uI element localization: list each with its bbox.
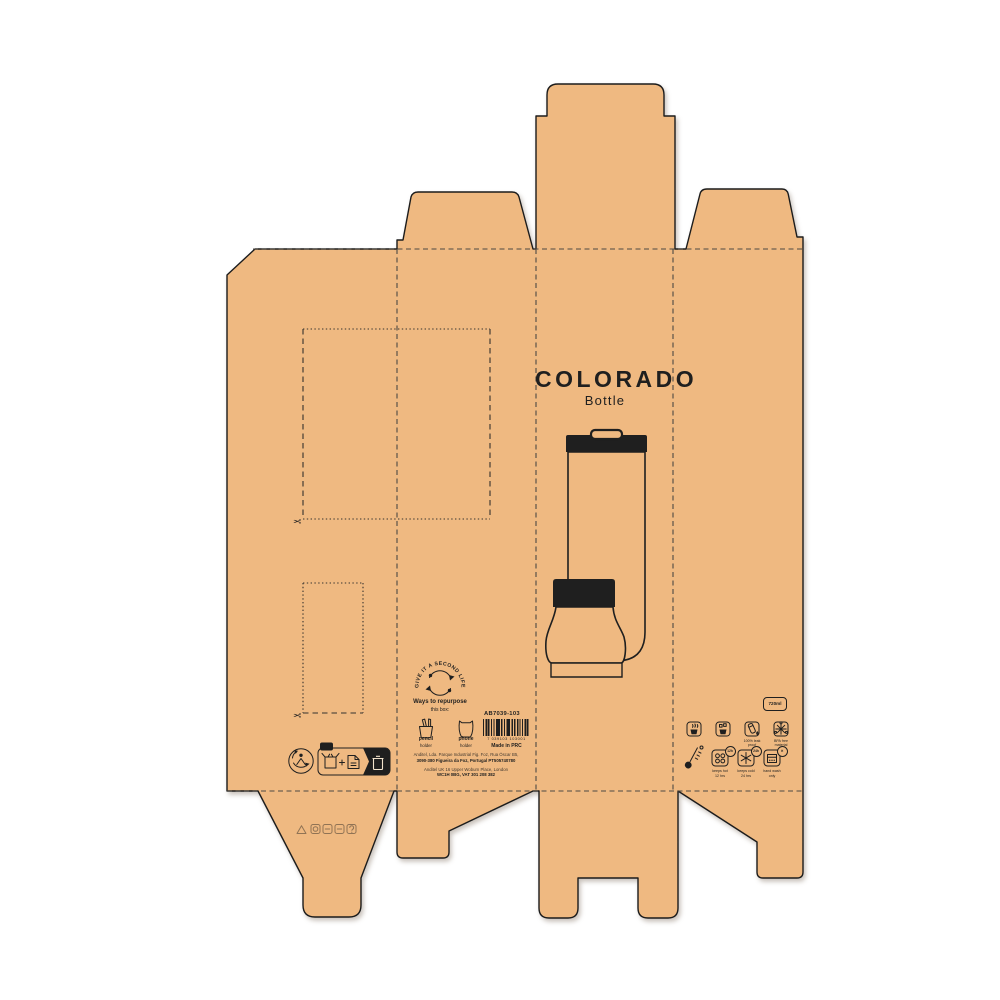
product-code: AB7039-103	[484, 711, 520, 717]
repurpose-subheading: this box:	[398, 707, 482, 713]
hot-hours-badge: 12h	[725, 746, 736, 757]
cold-caption-2: 24 hrs	[732, 774, 760, 778]
phone-holder-sublabel: holder	[450, 743, 482, 748]
no-dishwasher-badge: ✕	[777, 746, 788, 757]
cold-hours-badge: 24h	[751, 746, 762, 757]
address-line-4: WC1H 0BG, VAT 301 208 382	[391, 772, 541, 777]
wash-caption-2: only	[758, 774, 786, 778]
repurpose-heading: Ways to repurpose	[398, 699, 482, 705]
capacity-badge: 720ml	[763, 697, 787, 711]
barcode	[483, 719, 530, 736]
dieline-canvas: GIVE IT A SECOND LIFE	[0, 0, 1000, 1000]
address-line-2: 3090-380 Figueira da Foz, Portugal PT505…	[391, 758, 541, 763]
box-dieline-drawing: GIVE IT A SECOND LIFE	[0, 0, 1000, 1000]
made-in-label: Made in PRC	[483, 743, 530, 749]
phone-holder-label: phone	[450, 737, 482, 742]
hot-caption-2: 12 hrs	[706, 774, 734, 778]
dieline-outline	[227, 84, 803, 918]
scissors-glyph: ✂	[293, 518, 301, 528]
pencil-holder-label: pencil	[410, 737, 442, 742]
scissors-glyph: ✂	[293, 712, 301, 722]
product-subtitle: Bottle	[535, 393, 675, 408]
pencil-holder-sublabel: holder	[410, 743, 442, 748]
barcode-digits: 7 039103 103001	[483, 737, 530, 741]
scissors-icon: ✂	[293, 706, 301, 724]
product-title: COLORADO	[535, 366, 675, 393]
scissors-icon: ✂	[293, 512, 301, 530]
